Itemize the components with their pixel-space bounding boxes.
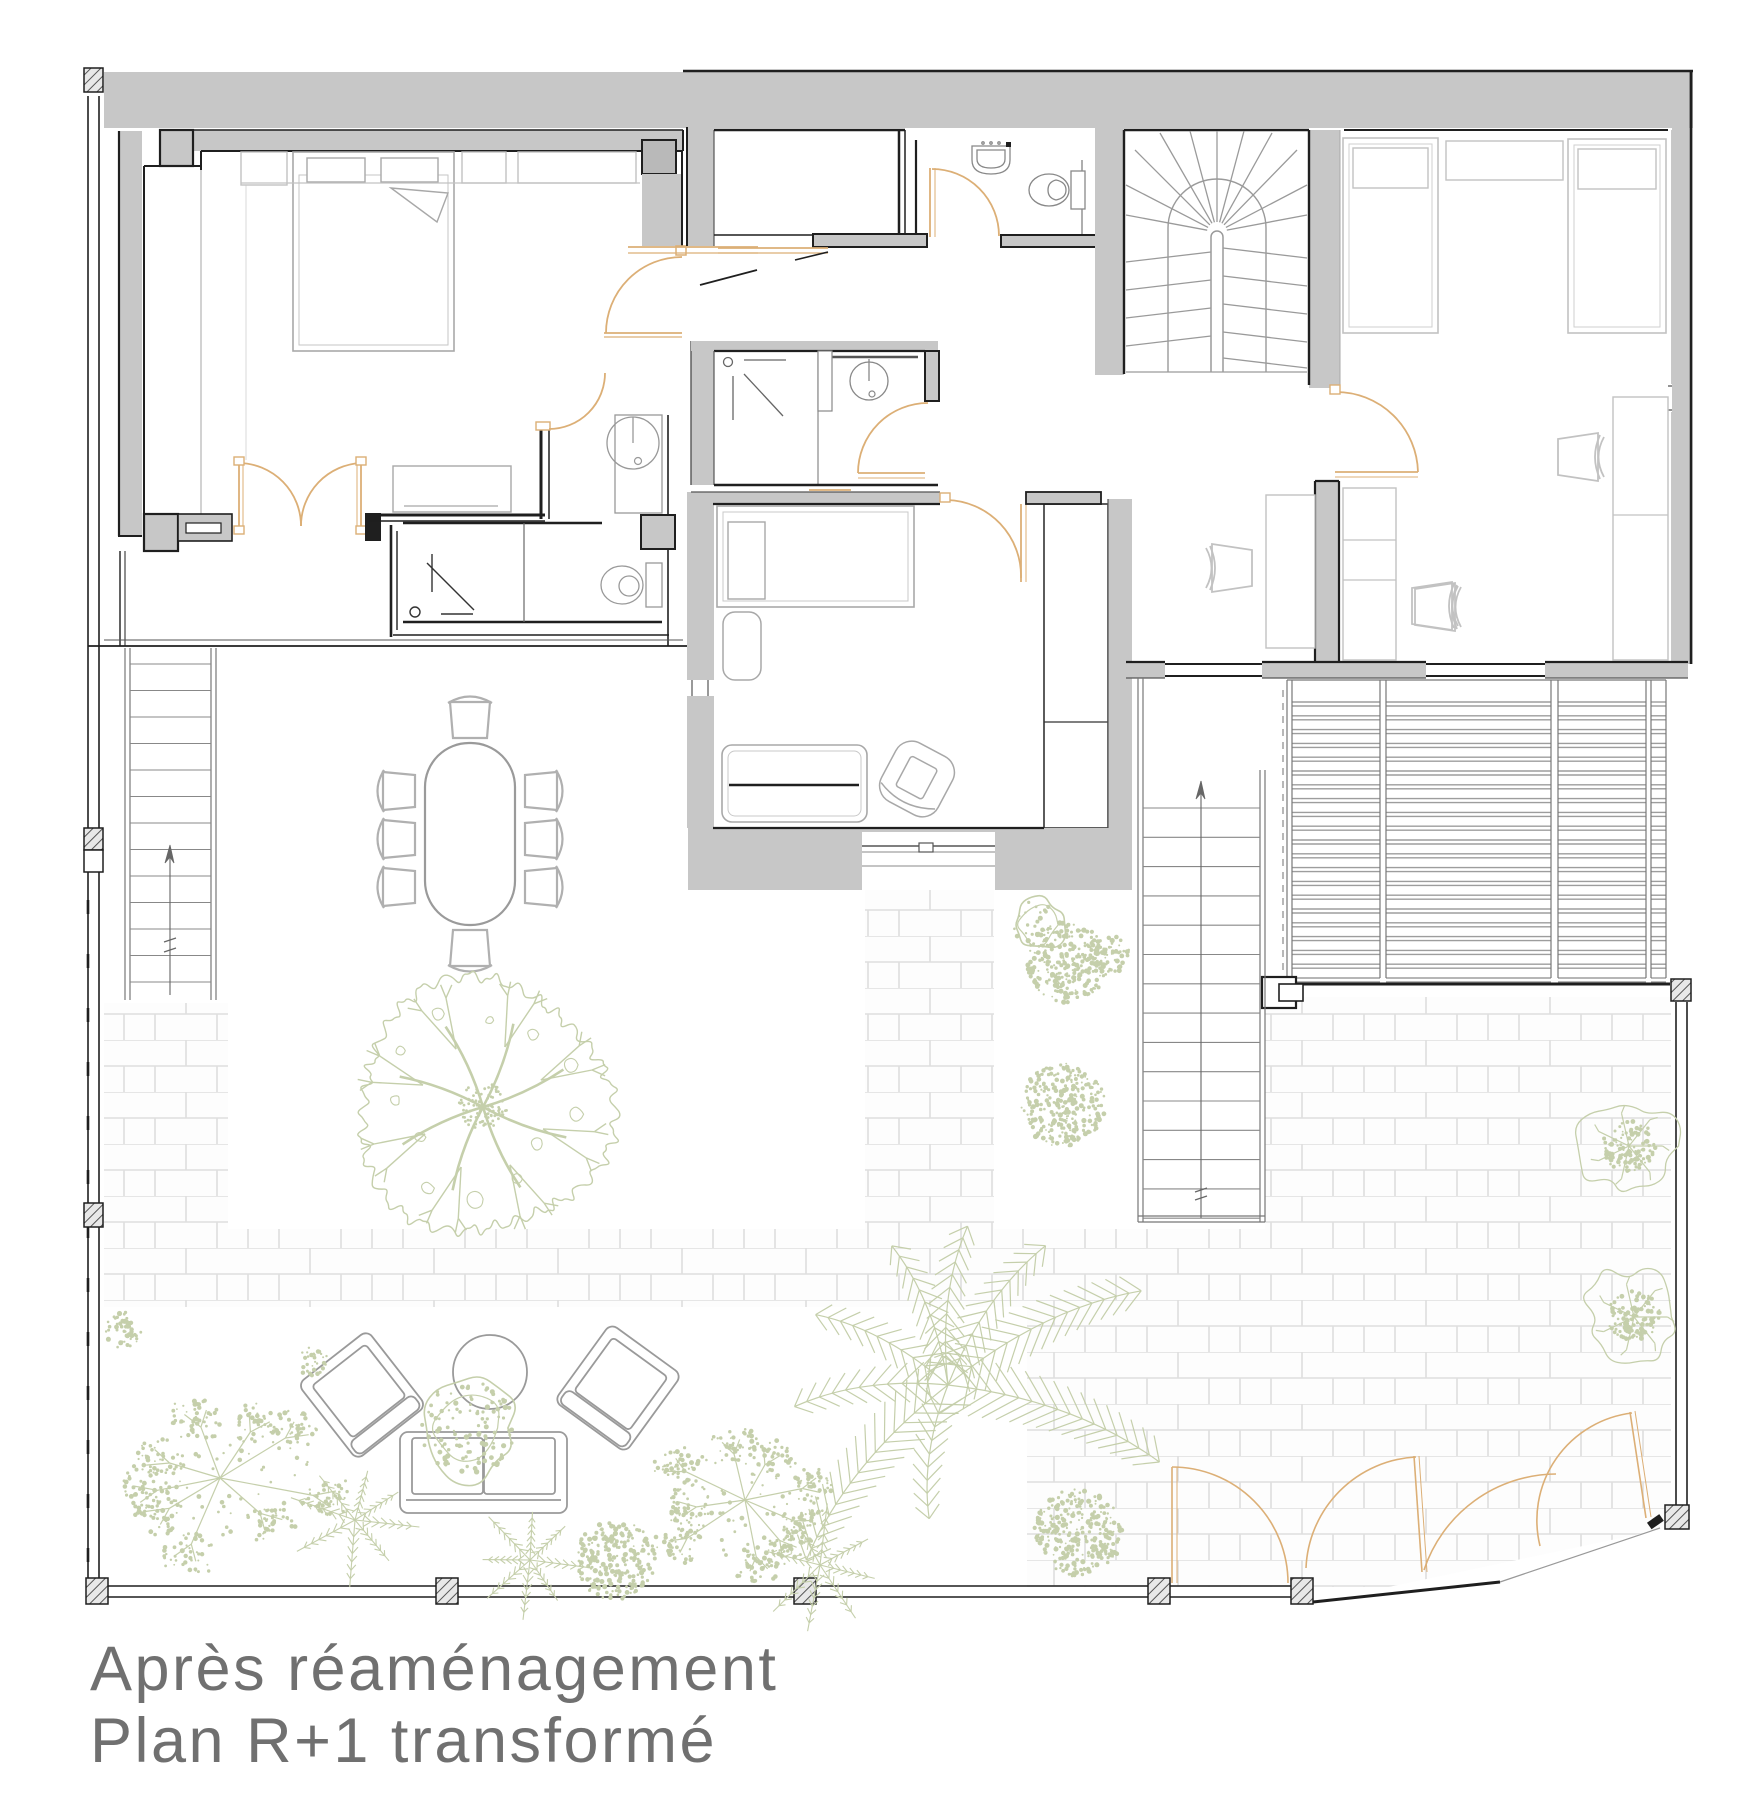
svg-text:Après réaménagement: Après réaménagement <box>90 1634 778 1704</box>
svg-text:Plan R+1 transformé: Plan R+1 transformé <box>90 1706 717 1776</box>
